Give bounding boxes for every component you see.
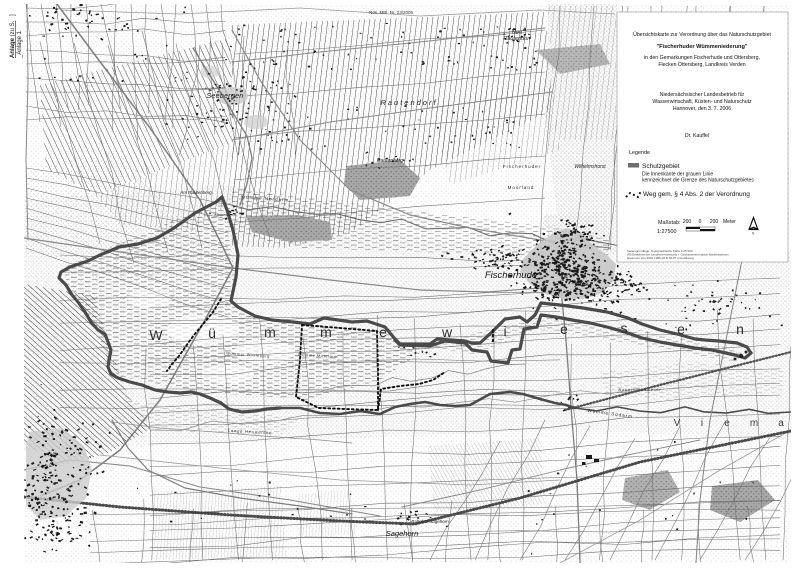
svg-text:Bauerngrasweide: Bauerngrasweide: [618, 387, 661, 392]
svg-text:"Fischerhuder Wümmeniederung": "Fischerhuder Wümmeniederung": [656, 44, 747, 50]
svg-text:in den Gemarkungen Fischerhude: in den Gemarkungen Fischerhude und Otter…: [644, 55, 760, 61]
svg-text:Nds. MBl. Nr. 23/2006: Nds. MBl. Nr. 23/2006: [369, 10, 414, 15]
svg-text:e: e: [677, 321, 685, 337]
svg-text:Schutzgebiet: Schutzgebiet: [642, 163, 680, 170]
svg-text:Weg gem. § 4 Abs. 2 der Verord: Weg gem. § 4 Abs. 2 der Verordnung: [643, 191, 750, 198]
svg-text:e: e: [724, 418, 730, 429]
svg-text:Wasserwirtschaft, Küsten- und: Wasserwirtschaft, Küsten- und Naturschut…: [652, 99, 752, 105]
svg-text:i: i: [503, 323, 506, 339]
svg-text:Flecken Ottersberg, Landkreis: Flecken Ottersberg, Landkreis Verden: [658, 62, 745, 68]
svg-text:m: m: [750, 418, 758, 429]
svg-text:Bahnhof Sagehorn: Bahnhof Sagehorn: [411, 519, 449, 524]
svg-text:e: e: [379, 324, 387, 340]
svg-text:e: e: [560, 321, 568, 337]
svg-text:Niedersächsischer Landesbetrie: Niedersächsischer Landesbetrieb für: [660, 92, 745, 98]
svg-text:Fischerhude: Fischerhude: [485, 270, 537, 281]
svg-text:Kleinviehweiden: Kleinviehweiden: [191, 510, 221, 515]
svg-text:Übersichtskarte zur Verordnung: Übersichtskarte zur Verordnung über das …: [633, 31, 771, 38]
svg-text:Maßstab:: Maßstab:: [658, 220, 680, 226]
svg-text:Rautendorf: Rautendorf: [380, 98, 437, 107]
svg-text:Mooreck: Mooreck: [214, 212, 230, 217]
svg-text:m: m: [320, 324, 332, 340]
svg-text:V: V: [674, 418, 681, 429]
svg-text:Moorland: Moorland: [508, 185, 535, 190]
svg-text:w: w: [441, 324, 453, 340]
svg-text:1:27500: 1:27500: [657, 229, 677, 235]
svg-text:W: W: [149, 327, 163, 343]
svg-text:Sagehorn: Sagehorn: [386, 529, 419, 538]
svg-text:s: s: [621, 320, 628, 336]
svg-text:Meter: Meter: [723, 219, 736, 225]
svg-text:Anlage (zu S.: Anlage (zu S.: [10, 20, 16, 58]
svg-text:Rautendorf: Rautendorf: [503, 36, 531, 42]
svg-text:kennzeichnet die Grenze des Na: kennzeichnet die Grenze des Naturschutzg…: [642, 178, 754, 184]
svg-text:Seebergen: Seebergen: [207, 93, 244, 100]
svg-text:ü: ü: [208, 325, 216, 341]
svg-text:n: n: [736, 321, 744, 337]
svg-text:Wilhelmshorst: Wilhelmshorst: [574, 164, 606, 170]
svg-text:i: i: [701, 418, 703, 429]
svg-text:0: 0: [699, 219, 702, 225]
svg-text:a: a: [778, 418, 784, 429]
svg-text:Legende: Legende: [629, 150, 650, 156]
svg-text:Dr. Kauffel: Dr. Kauffel: [685, 133, 709, 139]
svg-text:Am Rautenberg: Am Rautenberg: [179, 190, 212, 195]
svg-text:m: m: [264, 324, 276, 340]
svg-text:Hannover von 2001 1996-04 B: Hannover von 2001 1996-04 B 66-97 umudde…: [627, 256, 694, 260]
svg-text:200: 200: [683, 219, 692, 225]
svg-text:Fischerhuder: Fischerhuder: [503, 164, 541, 169]
svg-text:Hannover, den 3. 7. 2006: Hannover, den 3. 7. 2006: [673, 106, 731, 112]
svg-text:_Anlage 1: _Anlage 1: [17, 30, 23, 59]
svg-text:200: 200: [710, 219, 719, 225]
svg-text:Rautenberg: Rautenberg: [377, 158, 403, 164]
